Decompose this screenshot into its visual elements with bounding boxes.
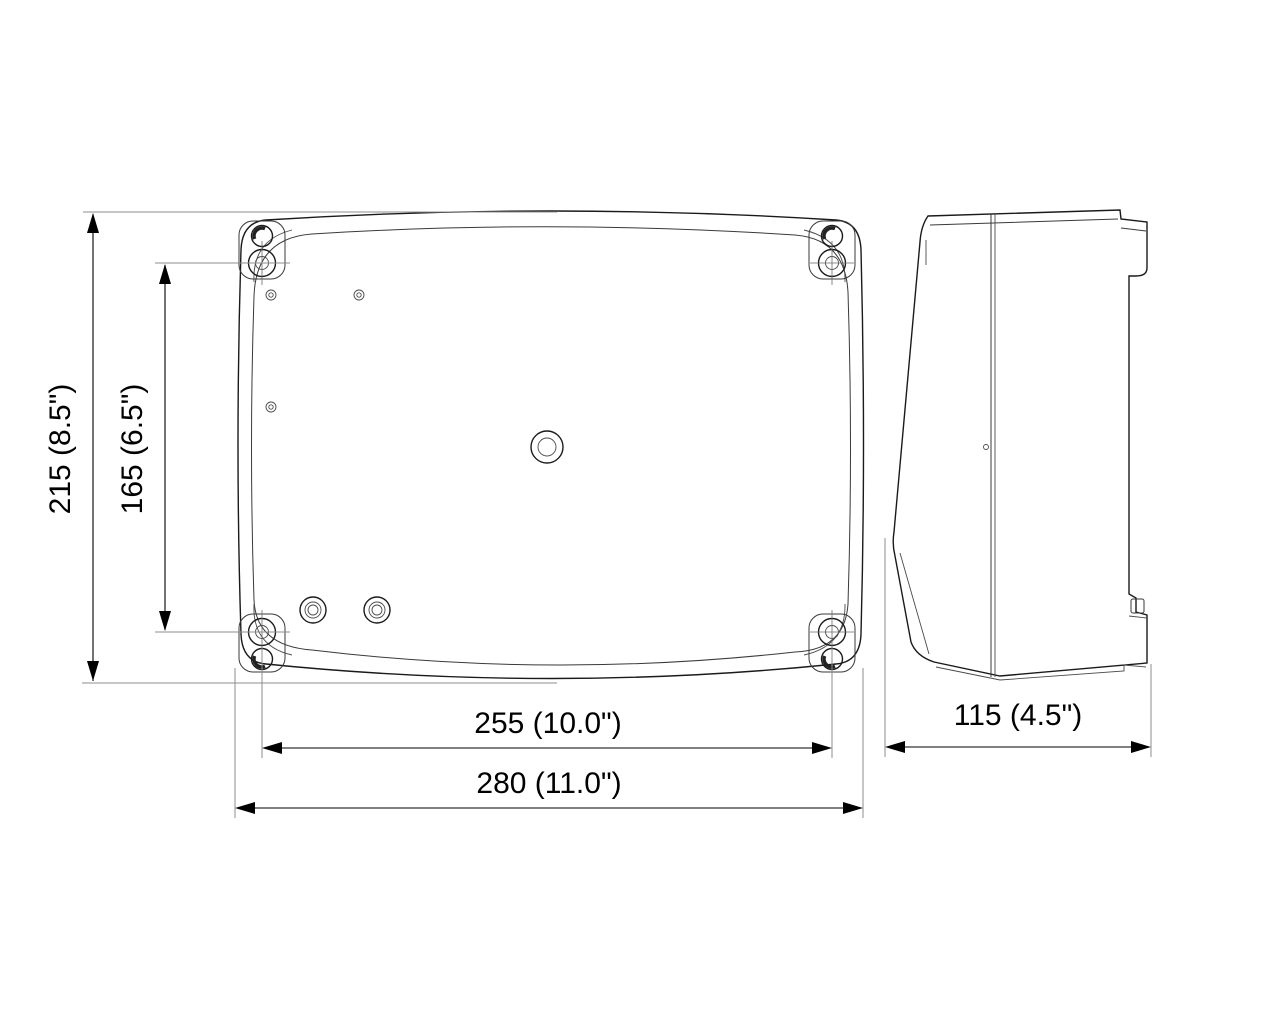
- corner-hole-bl-shade: [254, 656, 265, 667]
- front-outer-contour: [238, 211, 864, 679]
- dim-height-inner: 165 (6.5"): [116, 263, 290, 632]
- front-view: [238, 211, 864, 679]
- arrow-up-icon: [159, 264, 171, 284]
- dim-depth: 115 (4.5"): [885, 538, 1151, 757]
- arrow-down-icon: [159, 611, 171, 631]
- arrow-left-icon: [235, 802, 255, 814]
- corner-accent-br: [804, 604, 845, 655]
- pilot-hole-2: [354, 290, 364, 300]
- side-pin-hole: [984, 445, 989, 450]
- grommet-1: [300, 597, 326, 623]
- corner-accent-bl: [254, 604, 292, 655]
- dimension-drawing: 215 (8.5") 165 (6.5") 255 (10.0") 280 (1…: [0, 0, 1280, 1024]
- arrow-up-icon: [87, 213, 99, 233]
- dim-depth-label: 115 (4.5"): [954, 699, 1083, 732]
- arrow-right-icon: [843, 802, 863, 814]
- grommet-2: [364, 597, 390, 623]
- arrow-left-icon: [885, 741, 905, 753]
- pilot-hole-3: [266, 402, 276, 412]
- mount-hole-top-right: [810, 241, 854, 285]
- side-latch-base: [1129, 616, 1147, 618]
- mount-hole-bottom-right: [810, 610, 854, 654]
- side-outer-contour: [893, 210, 1147, 676]
- arrow-right-icon: [812, 742, 832, 754]
- arrow-down-icon: [87, 661, 99, 681]
- corner-hole-tr-shade: [824, 228, 835, 239]
- arrow-left-icon: [262, 742, 282, 754]
- side-top-inner-line: [930, 219, 1146, 231]
- drawing-canvas: 215 (8.5") 165 (6.5") 255 (10.0") 280 (1…: [0, 0, 1280, 1024]
- dim-height-inner-label: 165 (6.5"): [116, 384, 149, 515]
- corner-hole-tl-shade: [254, 228, 265, 239]
- side-view: [893, 210, 1147, 680]
- arrow-right-icon: [1131, 741, 1151, 753]
- pilot-hole-1: [266, 290, 276, 300]
- side-latch-tab: [1131, 599, 1144, 613]
- dim-width-inner-label: 255 (10.0"): [474, 707, 621, 740]
- corner-hole-br-shade: [824, 656, 835, 667]
- dim-width-outer: 280 (11.0"): [235, 668, 863, 818]
- dim-width-outer-label: 280 (11.0"): [476, 767, 621, 800]
- front-inner-contour: [252, 227, 851, 665]
- dim-height-outer-label: 215 (8.5"): [44, 384, 77, 515]
- center-hole: [531, 431, 563, 463]
